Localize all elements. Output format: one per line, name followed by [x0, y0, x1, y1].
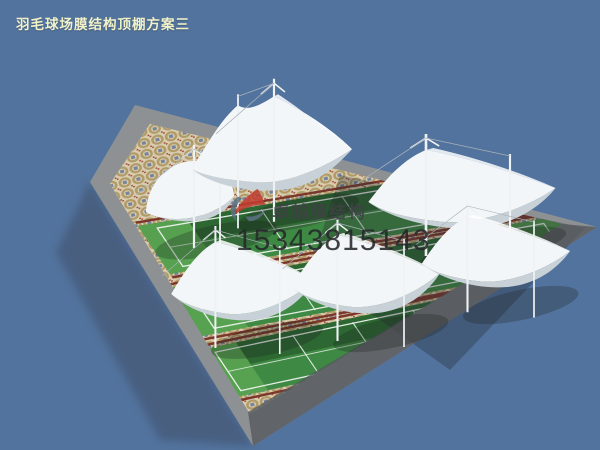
watermark: 卓越膜结构 15343815143 [224, 188, 431, 256]
watermark-phone: 15343815143 [236, 226, 431, 256]
watermark-brand-row: 卓越膜结构 [224, 188, 431, 224]
render-viewport: 羽毛球场膜结构顶棚方案三 卓越膜结构 15343815143 [0, 0, 600, 450]
brand-name-text: 卓越膜结构 [272, 204, 367, 221]
brand-logo-icon [224, 186, 272, 224]
page-title: 羽毛球场膜结构顶棚方案三 [16, 13, 190, 33]
